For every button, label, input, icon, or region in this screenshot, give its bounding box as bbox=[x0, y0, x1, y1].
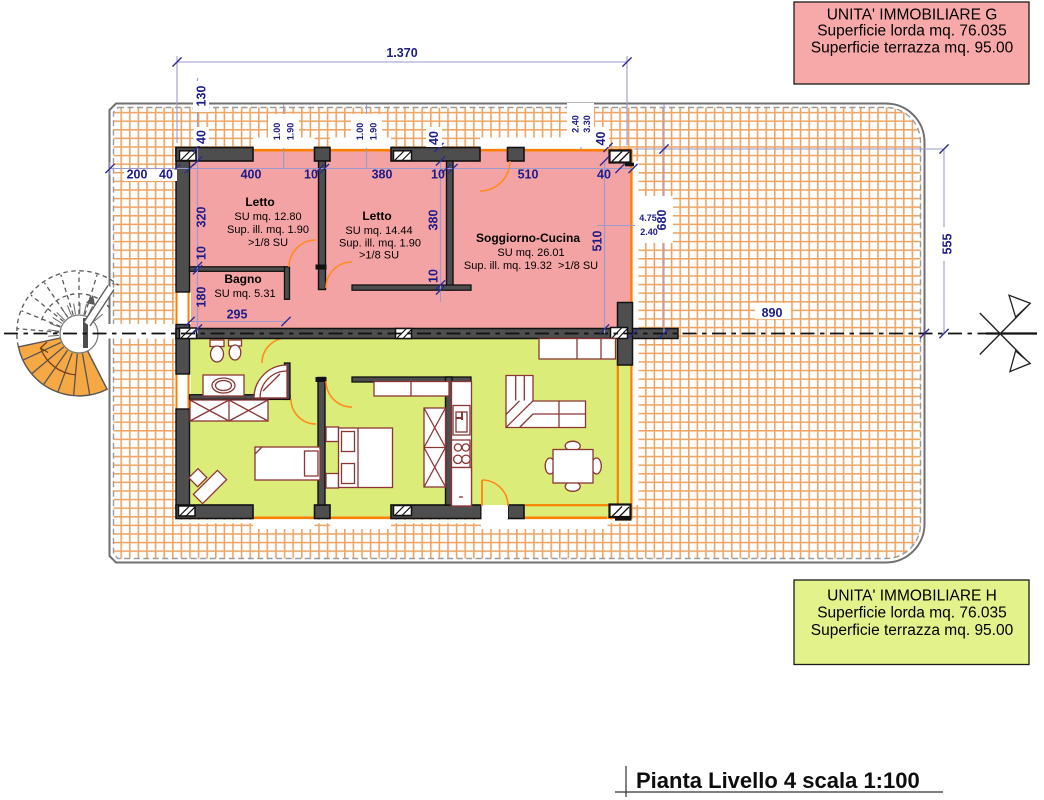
svg-text:Superficie lorda mq. 76.035: Superficie lorda mq. 76.035 bbox=[817, 23, 1007, 40]
svg-text:UNITA' IMMOBILIARE G: UNITA' IMMOBILIARE G bbox=[827, 7, 998, 24]
svg-text:Letto: Letto bbox=[245, 195, 274, 209]
svg-text:180: 180 bbox=[195, 287, 209, 308]
svg-text:10: 10 bbox=[431, 168, 445, 182]
svg-text:2.40: 2.40 bbox=[640, 227, 658, 237]
svg-text:Pianta Livello 4 scala 1:100: Pianta Livello 4 scala 1:100 bbox=[636, 768, 920, 793]
svg-text:40: 40 bbox=[195, 130, 209, 144]
svg-text:130: 130 bbox=[195, 86, 209, 107]
svg-text:>1/8 SU: >1/8 SU bbox=[248, 237, 288, 249]
svg-text:320: 320 bbox=[195, 207, 209, 228]
svg-text:Sup. ill. mq. 19.32 >1/8 SU: Sup. ill. mq. 19.32 >1/8 SU bbox=[464, 260, 598, 272]
svg-text:200: 200 bbox=[127, 168, 148, 182]
svg-text:Sup. ill. mq. 1.90: Sup. ill. mq. 1.90 bbox=[227, 224, 309, 236]
svg-text:Superficie terrazza mq. 95.00: Superficie terrazza mq. 95.00 bbox=[811, 622, 1014, 639]
svg-text:295: 295 bbox=[227, 308, 248, 322]
svg-text:1.90: 1.90 bbox=[369, 123, 379, 141]
svg-text:3.30: 3.30 bbox=[582, 115, 592, 133]
svg-text:Letto: Letto bbox=[362, 209, 391, 223]
svg-text:Soggiorno-Cucina: Soggiorno-Cucina bbox=[476, 231, 580, 245]
svg-text:Superficie terrazza mq. 95.00: Superficie terrazza mq. 95.00 bbox=[811, 40, 1014, 57]
svg-text:SU mq. 26.01: SU mq. 26.01 bbox=[497, 247, 564, 259]
svg-text:2.40: 2.40 bbox=[571, 115, 581, 133]
svg-text:890: 890 bbox=[762, 306, 783, 320]
svg-text:380: 380 bbox=[372, 168, 393, 182]
svg-text:510: 510 bbox=[591, 231, 605, 252]
svg-text:Superficie lorda mq. 76.035: Superficie lorda mq. 76.035 bbox=[817, 605, 1007, 622]
svg-text:40: 40 bbox=[597, 168, 611, 182]
svg-text:>1/8 SU: >1/8 SU bbox=[359, 250, 399, 262]
svg-text:UNITA' IMMOBILIARE H: UNITA' IMMOBILIARE H bbox=[827, 588, 997, 605]
svg-text:10: 10 bbox=[427, 269, 441, 283]
svg-text:510: 510 bbox=[518, 168, 539, 182]
svg-text:1.00: 1.00 bbox=[355, 123, 365, 141]
svg-text:Sup. ill. mq. 1.90: Sup. ill. mq. 1.90 bbox=[339, 238, 421, 250]
svg-text:1.370: 1.370 bbox=[386, 46, 417, 60]
svg-text:SU mq. 14.44: SU mq. 14.44 bbox=[345, 225, 412, 237]
svg-text:SU mq. 12.80: SU mq. 12.80 bbox=[234, 211, 301, 223]
svg-text:555: 555 bbox=[941, 234, 955, 255]
svg-text:10: 10 bbox=[304, 168, 318, 182]
svg-text:40: 40 bbox=[159, 168, 173, 182]
svg-text:40: 40 bbox=[427, 131, 441, 145]
svg-text:Bagno: Bagno bbox=[224, 272, 261, 286]
svg-text:10: 10 bbox=[195, 246, 209, 260]
svg-text:1.90: 1.90 bbox=[286, 123, 296, 141]
svg-text:4.75: 4.75 bbox=[639, 213, 657, 223]
svg-text:40: 40 bbox=[594, 132, 608, 146]
svg-text:SU mq. 5.31: SU mq. 5.31 bbox=[214, 288, 275, 300]
svg-text:400: 400 bbox=[241, 168, 262, 182]
svg-text:380: 380 bbox=[427, 210, 441, 231]
svg-text:1.00: 1.00 bbox=[272, 123, 282, 141]
